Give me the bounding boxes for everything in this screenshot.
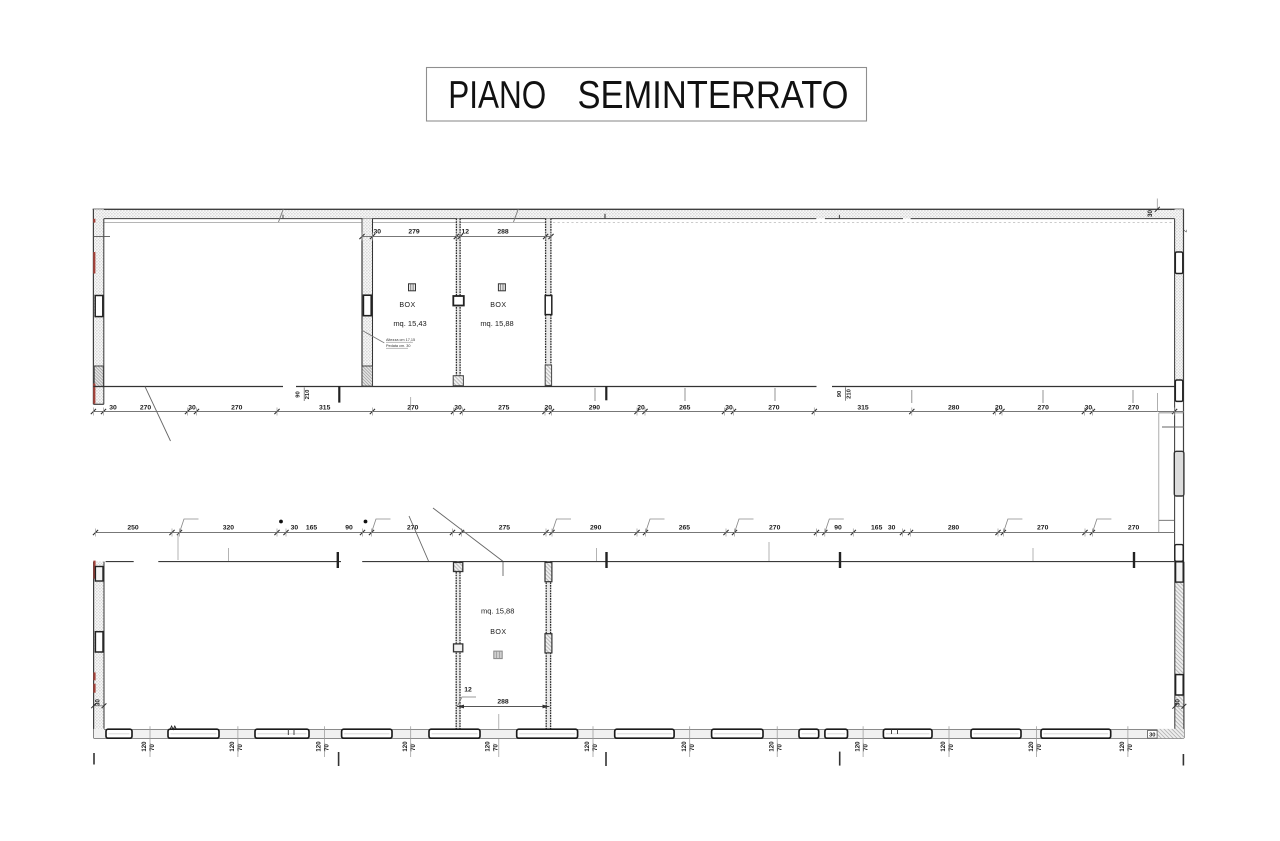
svg-text:20: 20 <box>995 404 1003 411</box>
svg-text:mq. 15,88: mq. 15,88 <box>480 319 513 328</box>
svg-text:250: 250 <box>127 524 139 531</box>
svg-text:12: 12 <box>464 687 472 694</box>
svg-text:30: 30 <box>725 404 733 411</box>
svg-text:320: 320 <box>223 524 235 531</box>
svg-text:BOX: BOX <box>399 301 415 309</box>
svg-text:90: 90 <box>295 391 301 398</box>
svg-text:280: 280 <box>948 404 960 411</box>
svg-text:270: 270 <box>1037 524 1049 531</box>
svg-text:270: 270 <box>140 404 152 411</box>
svg-text:288: 288 <box>497 698 509 705</box>
svg-text:270: 270 <box>231 404 243 411</box>
svg-text:90: 90 <box>345 524 353 531</box>
svg-text:mq. 15,43: mq. 15,43 <box>393 319 426 328</box>
svg-text:30: 30 <box>888 524 896 531</box>
svg-text:12: 12 <box>462 229 470 236</box>
svg-text:210: 210 <box>847 388 853 399</box>
svg-text:20: 20 <box>637 404 645 411</box>
svg-text:315: 315 <box>857 404 869 411</box>
svg-text:20: 20 <box>545 404 553 411</box>
svg-text:165: 165 <box>871 524 883 531</box>
svg-text:315: 315 <box>319 404 331 411</box>
svg-text:30: 30 <box>454 404 462 411</box>
svg-text:120: 120 <box>229 741 236 752</box>
svg-text:120: 120 <box>402 741 409 752</box>
svg-text:90: 90 <box>837 390 843 397</box>
svg-text:280: 280 <box>948 524 960 531</box>
svg-text:275: 275 <box>499 524 511 531</box>
svg-text:120: 120 <box>1028 741 1035 752</box>
svg-text:290: 290 <box>590 524 602 531</box>
svg-text:30: 30 <box>96 699 102 706</box>
svg-text:120: 120 <box>1119 741 1126 752</box>
svg-text:120: 120 <box>141 741 148 752</box>
svg-text:275: 275 <box>498 404 510 411</box>
svg-text:265: 265 <box>679 524 691 531</box>
svg-text:120: 120 <box>485 741 492 752</box>
svg-text:120: 120 <box>681 741 688 752</box>
svg-text:270: 270 <box>769 524 781 531</box>
svg-text:BOX: BOX <box>490 301 506 309</box>
svg-text:270: 270 <box>1038 404 1050 411</box>
svg-text:30: 30 <box>1147 210 1154 217</box>
svg-text:290: 290 <box>589 404 601 411</box>
svg-text:120: 120 <box>316 741 323 752</box>
svg-text:PIANO: PIANO <box>448 74 546 117</box>
svg-text:mq. 15,88: mq. 15,88 <box>481 607 514 616</box>
svg-text:Pedata cm. 30: Pedata cm. 30 <box>386 344 410 348</box>
svg-text:30: 30 <box>188 404 196 411</box>
svg-text:SEMINTERRATO: SEMINTERRATO <box>578 74 849 117</box>
svg-text:265: 265 <box>679 404 691 411</box>
svg-text:30: 30 <box>1149 733 1155 739</box>
svg-text:210: 210 <box>305 389 311 400</box>
svg-text:288: 288 <box>497 228 509 235</box>
svg-text:30: 30 <box>1085 404 1093 411</box>
svg-text:120: 120 <box>940 741 947 752</box>
svg-text:BOX: BOX <box>490 628 506 636</box>
svg-text:270: 270 <box>768 404 780 411</box>
svg-text:270: 270 <box>1128 524 1140 531</box>
svg-text:120: 120 <box>854 741 861 752</box>
svg-text:120: 120 <box>584 741 591 752</box>
svg-text:270: 270 <box>407 404 419 411</box>
svg-text:90: 90 <box>834 524 842 531</box>
svg-text:30: 30 <box>291 524 299 531</box>
svg-text:165: 165 <box>306 524 318 531</box>
svg-text:30: 30 <box>109 404 117 411</box>
svg-text:279: 279 <box>408 228 420 235</box>
svg-text:30: 30 <box>374 229 382 236</box>
svg-text:Altezza cm 17,15: Altezza cm 17,15 <box>386 338 415 342</box>
svg-text:270: 270 <box>1128 404 1140 411</box>
svg-text:120: 120 <box>768 741 775 752</box>
